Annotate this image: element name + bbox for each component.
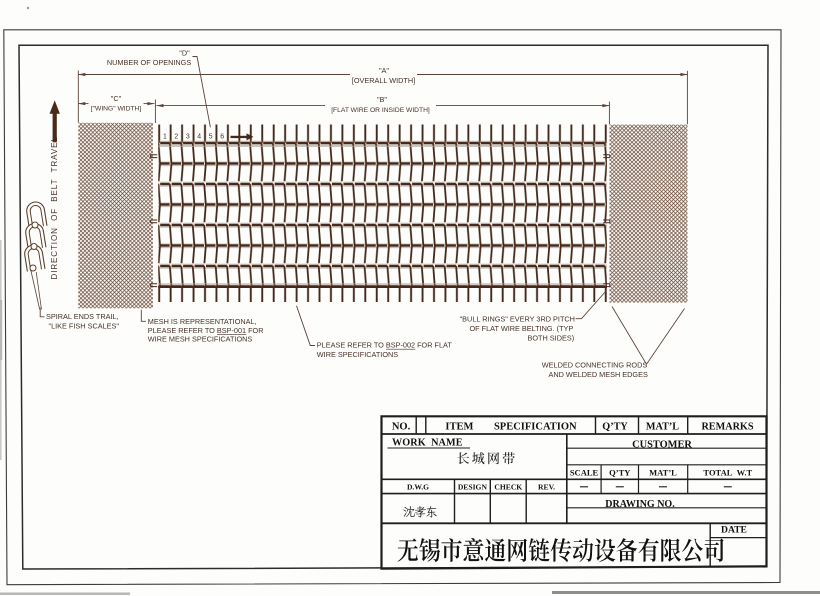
svg-text:6: 6 — [220, 134, 224, 141]
svg-text:[FLAT WIRE OR INSIDE WIDTH]: [FLAT WIRE OR INSIDE WIDTH] — [331, 107, 430, 114]
svg-text:1: 1 — [163, 134, 167, 141]
svg-text:Q’TY: Q’TY — [602, 422, 628, 433]
svg-text:["WING" WIDTH]: ["WING" WIDTH] — [91, 106, 142, 113]
svg-text:DIRECTION OF BELT TRAVEL: DIRECTION OF BELT TRAVEL — [50, 136, 59, 279]
svg-text:"LIKE FISH SCALES": "LIKE FISH SCALES" — [49, 322, 120, 331]
svg-text:Q’TY: Q’TY — [609, 468, 630, 478]
svg-text:3: 3 — [186, 134, 190, 141]
svg-text:SPECIFICATION: SPECIFICATION — [494, 422, 577, 433]
svg-text:WIRE MESH SPECIFICATIONS: WIRE MESH SPECIFICATIONS — [148, 335, 253, 344]
svg-text:"D": "D" — [179, 48, 190, 57]
svg-text:TOTAL W.T: TOTAL W.T — [703, 468, 752, 478]
svg-text:NUMBER OF OPENINGS: NUMBER OF OPENINGS — [107, 58, 191, 67]
svg-text:NO.: NO. — [392, 422, 411, 433]
svg-text:PLEASE REFER TO BSP-001 FOR: PLEASE REFER TO BSP-001 FOR — [148, 326, 264, 335]
svg-text:DESIGN: DESIGN — [458, 482, 488, 491]
svg-text:REV.: REV. — [538, 482, 555, 491]
svg-text:WELDED CONNECTING RODS: WELDED CONNECTING RODS — [542, 361, 648, 370]
svg-text:WIRE SPECIFICATIONS: WIRE SPECIFICATIONS — [317, 350, 398, 359]
svg-text:ITEM: ITEM — [445, 422, 473, 433]
svg-text:AND WELDED MESH EDGES: AND WELDED MESH EDGES — [549, 370, 648, 379]
svg-text:"C": "C" — [111, 94, 122, 103]
svg-text:SCALE: SCALE — [570, 468, 599, 478]
svg-text:4: 4 — [197, 134, 201, 141]
svg-text:"A": "A" — [379, 66, 389, 75]
svg-text:WORK NAME: WORK NAME — [392, 438, 463, 449]
svg-text:CUSTOMER: CUSTOMER — [632, 439, 692, 450]
svg-text:MESH IS REPRESENTATIONAL,: MESH IS REPRESENTATIONAL, — [148, 317, 257, 326]
svg-text:MAT’L: MAT’L — [646, 422, 679, 433]
svg-text:BOTH SIDES): BOTH SIDES) — [528, 333, 575, 342]
svg-text:CHECK: CHECK — [494, 482, 522, 491]
svg-text:SPIRAL ENDS TRAIL,: SPIRAL ENDS TRAIL, — [46, 312, 119, 321]
svg-text:"B": "B" — [377, 95, 387, 104]
svg-text:DATE: DATE — [721, 524, 747, 535]
svg-text:MAT’L: MAT’L — [649, 468, 677, 478]
svg-text:DRAWING NO.: DRAWING NO. — [605, 499, 675, 510]
svg-text:OF FLAT WIRE BELTING. (TYP: OF FLAT WIRE BELTING. (TYP — [470, 324, 574, 333]
svg-text:PLEASE REFER TO BSP-002 FOR FL: PLEASE REFER TO BSP-002 FOR FLAT — [317, 341, 453, 350]
svg-text:5: 5 — [209, 134, 213, 141]
svg-text:REMARKS: REMARKS — [701, 422, 753, 433]
svg-text:"BULL RINGS" EVERY 3RD PITCH: "BULL RINGS" EVERY 3RD PITCH — [460, 315, 575, 324]
svg-text:D.W.G: D.W.G — [407, 482, 429, 491]
svg-text:[OVERALL WIDTH]: [OVERALL WIDTH] — [352, 76, 415, 85]
svg-text:2: 2 — [174, 134, 178, 141]
